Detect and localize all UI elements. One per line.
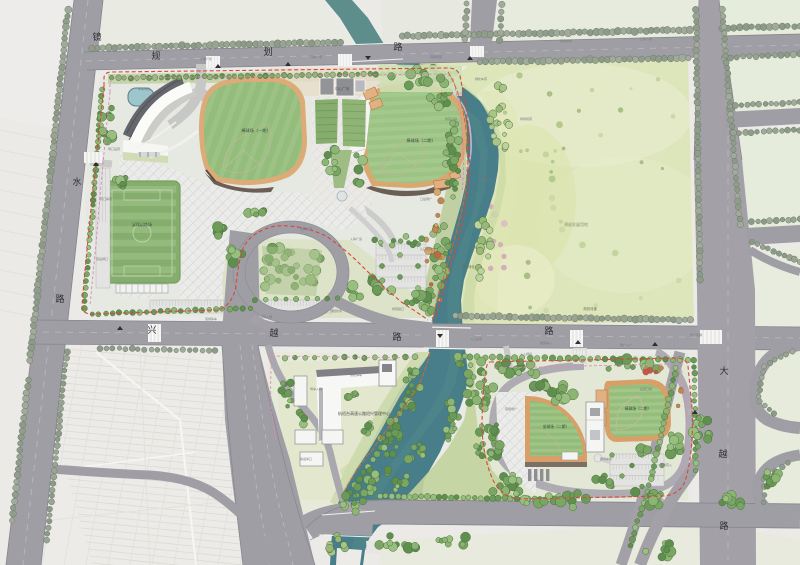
svg-text:入口勤营: 入口勤营 xyxy=(420,246,432,251)
svg-text:场场场营: 场场场营 xyxy=(520,116,532,121)
svg-text:口车广场: 口车广场 xyxy=(310,54,322,59)
svg-text:绿营勤口: 绿营勤口 xyxy=(392,306,404,311)
svg-text:入车广化: 入车广化 xyxy=(200,56,212,61)
svg-text:足球训练场: 足球训练场 xyxy=(132,221,152,227)
svg-text:营绿场营: 营绿场营 xyxy=(430,54,442,59)
svg-text:水: 水 xyxy=(72,176,81,187)
svg-text:镜: 镜 xyxy=(92,31,101,42)
svg-text:杭绍台高速公路绍兴管理中心: 杭绍台高速公路绍兴管理中心 xyxy=(338,410,390,416)
svg-text:入入绿后: 入入绿后 xyxy=(520,351,532,356)
svg-text:后营口勤: 后营口勤 xyxy=(640,386,652,391)
svg-text:预留发展用地: 预留发展用地 xyxy=(564,221,588,227)
svg-text:场营口绿: 场营口绿 xyxy=(445,116,457,121)
svg-text:口场广勤: 口场广勤 xyxy=(640,36,652,41)
svg-text:场营停营: 场营停营 xyxy=(300,226,312,231)
svg-text:绿化车营: 绿化车营 xyxy=(475,76,487,81)
svg-text:停运停口: 停运停口 xyxy=(300,456,312,461)
svg-text:滨河绿化: 滨河绿化 xyxy=(461,264,475,269)
svg-text:路: 路 xyxy=(544,325,553,336)
svg-text:路: 路 xyxy=(393,41,402,52)
svg-text:中心广场: 中心广场 xyxy=(335,86,350,91)
svg-text:规: 规 xyxy=(151,51,160,61)
svg-text:车勤运广: 车勤运广 xyxy=(530,386,542,391)
svg-text:口后绿广: 口后绿广 xyxy=(420,196,432,201)
svg-text:营后绿口: 营后绿口 xyxy=(96,256,108,261)
svg-text:馆场场广: 馆场场广 xyxy=(505,406,517,411)
svg-text:勤馆车入: 勤馆车入 xyxy=(540,340,552,345)
svg-text:馆绿停车: 馆绿停车 xyxy=(205,316,217,321)
svg-text:路: 路 xyxy=(392,331,401,342)
svg-text:车停场场: 车停场场 xyxy=(138,86,150,91)
svg-text:棒球场（一期）: 棒球场（一期） xyxy=(241,127,270,134)
svg-text:路: 路 xyxy=(719,520,728,531)
svg-text:大: 大 xyxy=(719,365,728,376)
svg-text:营绿场场: 营绿场场 xyxy=(560,38,572,43)
svg-text:路: 路 xyxy=(55,293,64,304)
svg-text:营口停馆: 营口停馆 xyxy=(100,196,112,201)
svg-text:入口后场: 入口后场 xyxy=(470,336,482,341)
svg-text:化广馆绿: 化广馆绿 xyxy=(690,332,702,337)
svg-text:规划河道: 规划河道 xyxy=(583,306,597,311)
svg-text:场广入广: 场广入广 xyxy=(620,342,632,347)
svg-text:入停广运: 入停广运 xyxy=(350,236,362,241)
svg-text:垒球场（二期）: 垒球场（二期） xyxy=(543,424,570,429)
svg-text:划: 划 xyxy=(263,46,272,57)
svg-text:场口后营: 场口后营 xyxy=(108,146,120,151)
svg-text:馆营入绿: 馆营入绿 xyxy=(260,314,272,319)
svg-text:越: 越 xyxy=(718,448,727,459)
svg-text:场车入绿: 场车入绿 xyxy=(310,386,322,391)
svg-text:馆运后口: 馆运后口 xyxy=(480,176,492,181)
svg-text:棒球场（二期）: 棒球场（二期） xyxy=(406,137,435,144)
svg-text:兴: 兴 xyxy=(147,325,156,335)
svg-text:馆化停车: 馆化停车 xyxy=(350,372,362,377)
svg-text:馆场营入: 馆场营入 xyxy=(660,462,672,467)
svg-text:绿勤化场: 绿勤化场 xyxy=(330,308,342,313)
svg-text:勤场车化: 勤场车化 xyxy=(600,456,612,461)
svg-text:越: 越 xyxy=(269,327,278,338)
svg-text:棒球场（二期）: 棒球场（二期） xyxy=(625,406,652,411)
